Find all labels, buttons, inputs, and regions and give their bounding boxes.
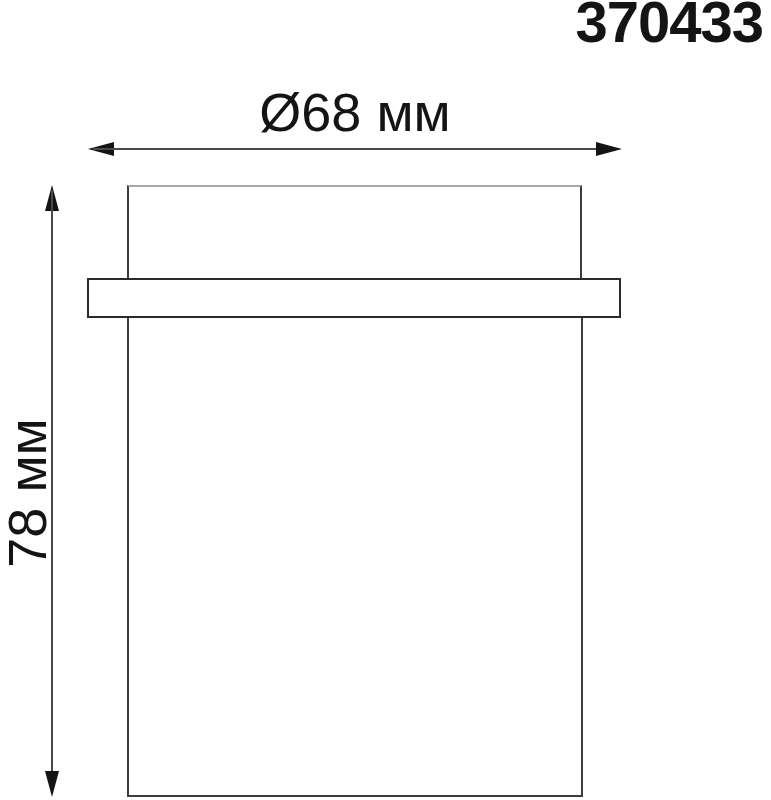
article-number: 370433 — [575, 0, 763, 51]
fixture-body — [127, 316, 583, 797]
fixture-mounting-flange — [87, 278, 621, 318]
diameter-dimension-arrow — [88, 142, 622, 156]
arrowhead-right-icon — [596, 142, 622, 156]
technical-drawing: 370433 Ø68 мм 78 мм — [0, 0, 771, 800]
diameter-dimension-label: Ø68 мм — [88, 85, 622, 139]
fixture-top-section — [127, 185, 582, 280]
diameter-dimension-line — [93, 148, 617, 150]
arrowhead-down-icon — [45, 771, 59, 797]
height-dimension-label: 78 мм — [0, 393, 54, 593]
